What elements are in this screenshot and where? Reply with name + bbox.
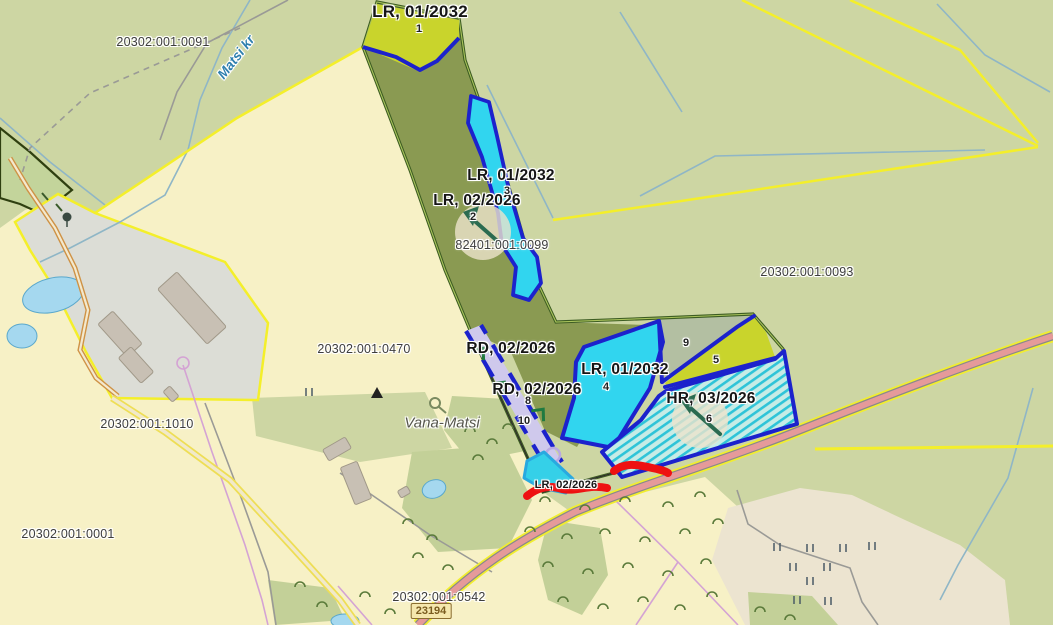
felling-icon-2: [455, 204, 511, 260]
road-shield: 23194: [411, 603, 452, 619]
map-viewport[interactable]: LR, 01/2032 LR, 01/2032 LR, 02/2026 RD, …: [0, 0, 1053, 625]
map-canvas[interactable]: [0, 0, 1053, 625]
felling-icon-6: [672, 392, 728, 448]
